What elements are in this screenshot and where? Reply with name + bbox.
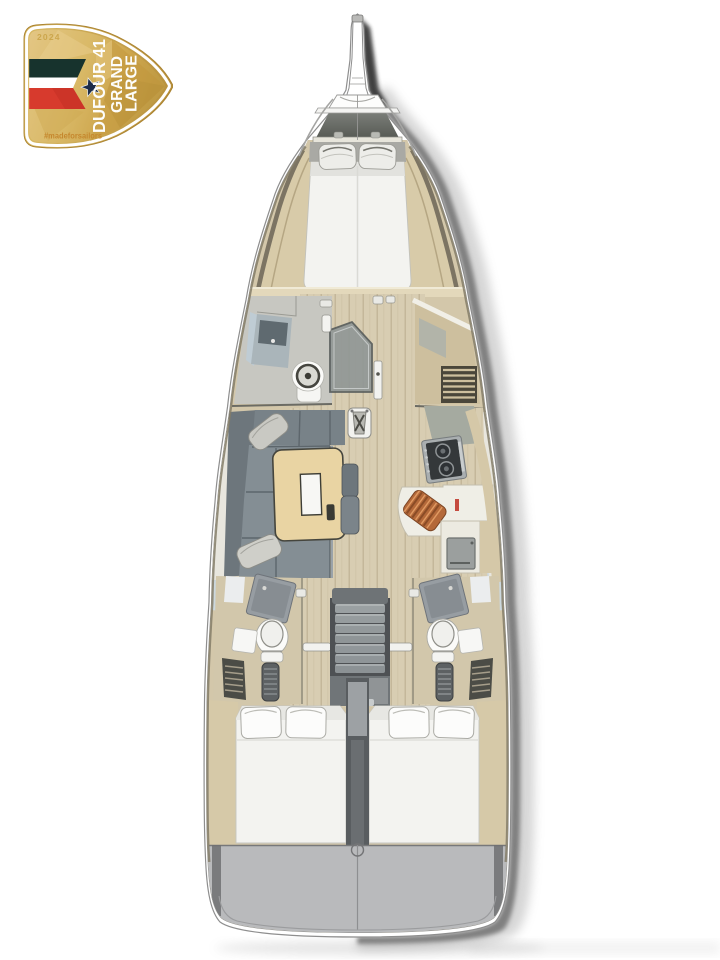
svg-text:DUFOUR 41: DUFOUR 41 xyxy=(89,39,109,133)
svg-text:LARGE: LARGE xyxy=(124,55,141,112)
svg-text:#madeforsailors: #madeforsailors xyxy=(44,132,102,141)
svg-text:2024: 2024 xyxy=(37,32,61,42)
